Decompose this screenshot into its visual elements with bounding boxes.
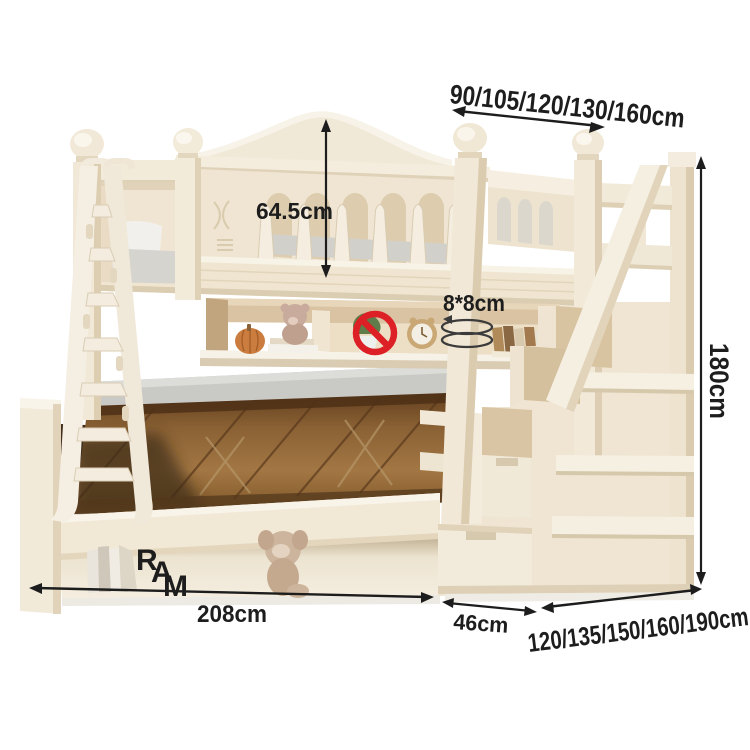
svg-text:8*8cm: 8*8cm — [443, 290, 505, 316]
svg-text:M: M — [163, 570, 188, 603]
svg-text:46cm: 46cm — [453, 609, 510, 638]
svg-text:180cm: 180cm — [704, 343, 734, 419]
svg-text:64.5cm: 64.5cm — [256, 198, 333, 224]
svg-text:208cm: 208cm — [197, 601, 267, 628]
